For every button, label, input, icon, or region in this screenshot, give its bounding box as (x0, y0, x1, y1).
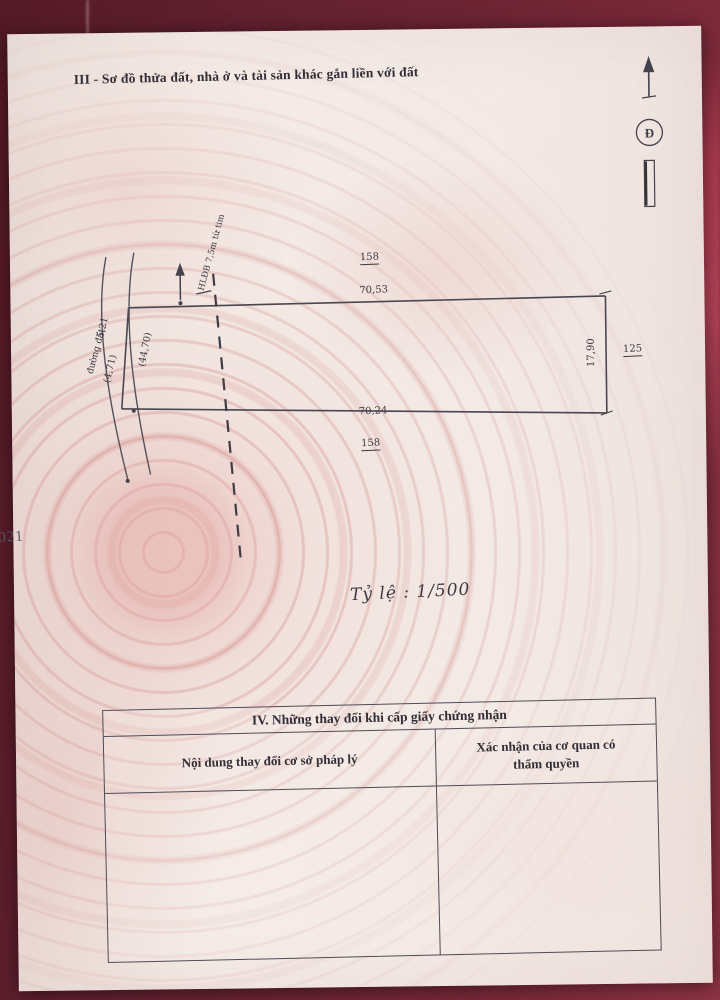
north-arrow-icon (642, 58, 656, 98)
cloth-streak (86, 0, 89, 34)
document-photo: III - Sơ đồ thửa đất, nhà ở và tài sản k… (0, 0, 720, 1000)
page-edge-number: 021 (0, 528, 24, 547)
edge-length-bottom: 70,24 (359, 405, 388, 417)
col-header-confirmation-line1: Xác nhận của cơ quan có (476, 736, 615, 757)
col-header-confirmation-line2: thẩm quyền (513, 754, 579, 773)
changes-table-body-row (105, 782, 661, 962)
plot-diagram (39, 206, 684, 634)
north-letter: Đ (645, 125, 655, 140)
edge-length-right: 17,90 (586, 338, 597, 367)
neighbor-plot-label-right: 125 (623, 343, 643, 357)
col-header-confirmation: Xác nhận của cơ quan có thẩm quyền (435, 725, 657, 786)
section-title: III - Sơ đồ thửa đất, nhà ở và tài sản k… (74, 61, 554, 88)
certificate-page: III - Sơ đồ thửa đất, nhà ở và tài sản k… (7, 26, 713, 991)
cell-confirmation-empty (437, 782, 661, 955)
north-letter-badge: Đ (636, 119, 662, 145)
col-header-content: Nội dung thay đổi cơ sở pháp lý (104, 730, 437, 794)
changes-table: IV. Những thay đổi khi cấp giấy chứng nh… (102, 698, 662, 964)
north-indicator: Đ (625, 54, 673, 211)
cell-content-empty (105, 787, 440, 962)
plot-boundary (120, 291, 612, 421)
neighbor-plot-label-top: 158 (360, 252, 380, 266)
edge-length-top: 70,53 (359, 284, 388, 296)
neighbor-plot-label-bottom: 158 (361, 438, 381, 452)
setback-dashed-line (213, 273, 240, 557)
map-bar-icon (644, 160, 655, 206)
